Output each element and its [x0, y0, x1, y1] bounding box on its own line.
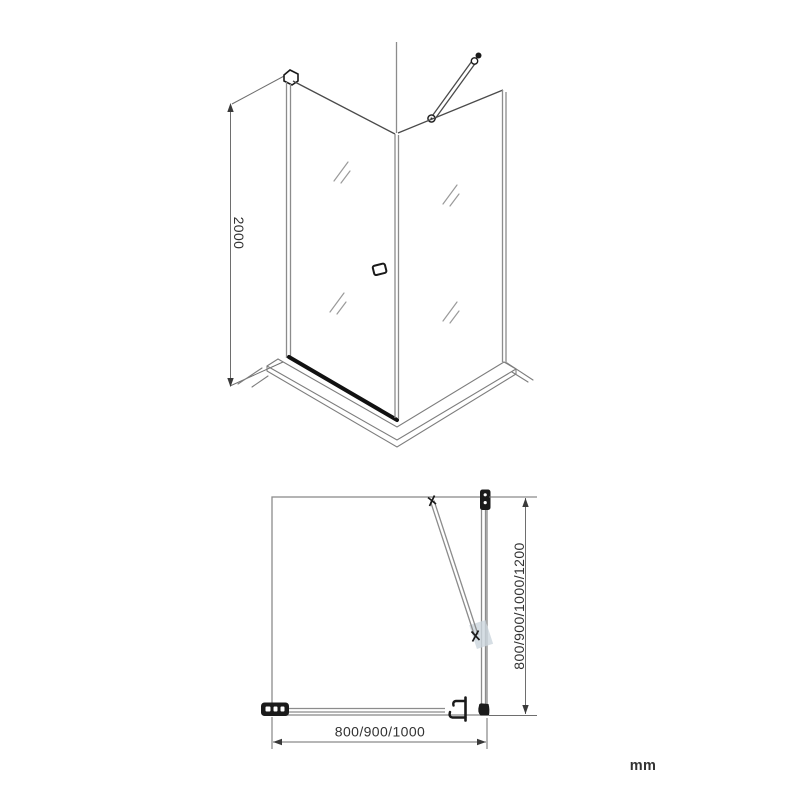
door-handle [372, 263, 386, 275]
shine-mark [341, 171, 350, 183]
door-panel [289, 81, 397, 420]
shine-mark [443, 302, 457, 321]
arrow-down-icon [227, 378, 233, 387]
shine-mark [334, 162, 348, 181]
handle-knob [372, 263, 386, 275]
unit-label: mm [630, 758, 657, 774]
door-bottom-seal [289, 357, 397, 420]
door-top-edge [293, 81, 395, 134]
hinge-block [261, 703, 289, 717]
plan-view: 800/900/1000/1200 800/900/1000 [261, 490, 537, 750]
corner-post [395, 42, 399, 419]
front-view: 2000 [227, 42, 533, 447]
technical-drawing: 2000 [0, 0, 800, 800]
arrow-right-icon [477, 739, 486, 745]
height-dimension: 2000 [227, 75, 286, 387]
bar-line [430, 61, 472, 119]
floor-hatch [512, 372, 528, 382]
width-dimension-label: 800/900/1000 [335, 724, 425, 740]
arrow-up-icon [227, 103, 233, 112]
tray-rim [267, 366, 516, 447]
bracket-body [480, 490, 491, 511]
bracket-dot [484, 493, 487, 496]
hinge-slot [266, 707, 271, 712]
bar-line [434, 63, 476, 121]
enclosure-outline [272, 497, 487, 715]
arrow-down-icon [522, 705, 528, 714]
arrow-left-icon [273, 739, 282, 745]
wall-anchor-dot [476, 53, 482, 59]
bracket-dot [484, 501, 487, 504]
extension-line [230, 362, 283, 386]
corner-bracket [478, 703, 489, 715]
floor-line [238, 368, 262, 384]
hinge-slot [274, 707, 278, 712]
shine-mark [450, 194, 459, 206]
side-panel [398, 90, 506, 363]
shine-mark [330, 293, 344, 312]
wall-bracket [480, 490, 491, 511]
tray-rim [267, 359, 516, 440]
hinge-slot [281, 707, 285, 712]
extension-line [232, 75, 286, 104]
shine-mark [450, 311, 459, 323]
bar-wall-connector [471, 58, 477, 64]
shine-mark [443, 185, 457, 204]
arrow-up-icon [522, 498, 528, 507]
support-bar [428, 53, 482, 123]
depth-dimension: 800/900/1000/1200 [489, 497, 537, 716]
depth-dimension-label: 800/900/1000/1200 [511, 542, 527, 669]
shower-tray [238, 359, 533, 447]
hinge-post [284, 70, 298, 358]
width-dimension: 800/900/1000 [272, 717, 487, 749]
height-dimension-label: 2000 [231, 217, 247, 250]
floor-hatch [252, 376, 268, 387]
shine-mark [337, 302, 346, 314]
